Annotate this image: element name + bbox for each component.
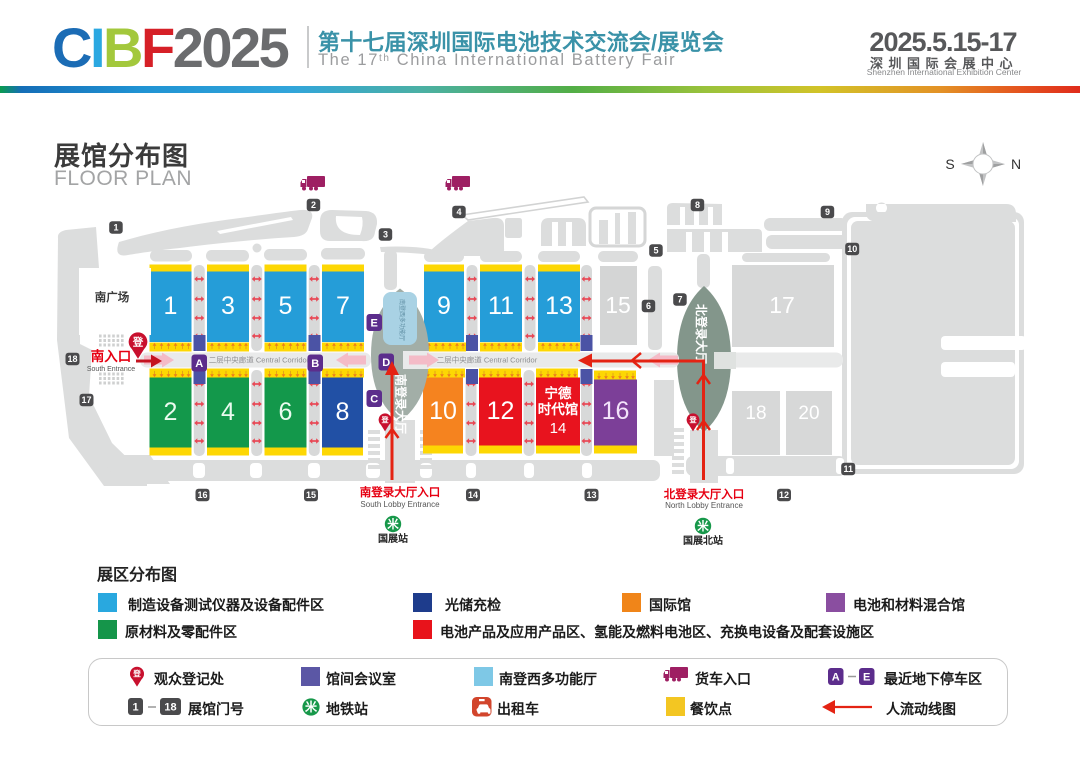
svg-text:E: E [863,672,870,684]
svg-text:18: 18 [164,702,176,714]
svg-text:1: 1 [132,702,138,714]
svg-text:A: A [832,672,840,684]
